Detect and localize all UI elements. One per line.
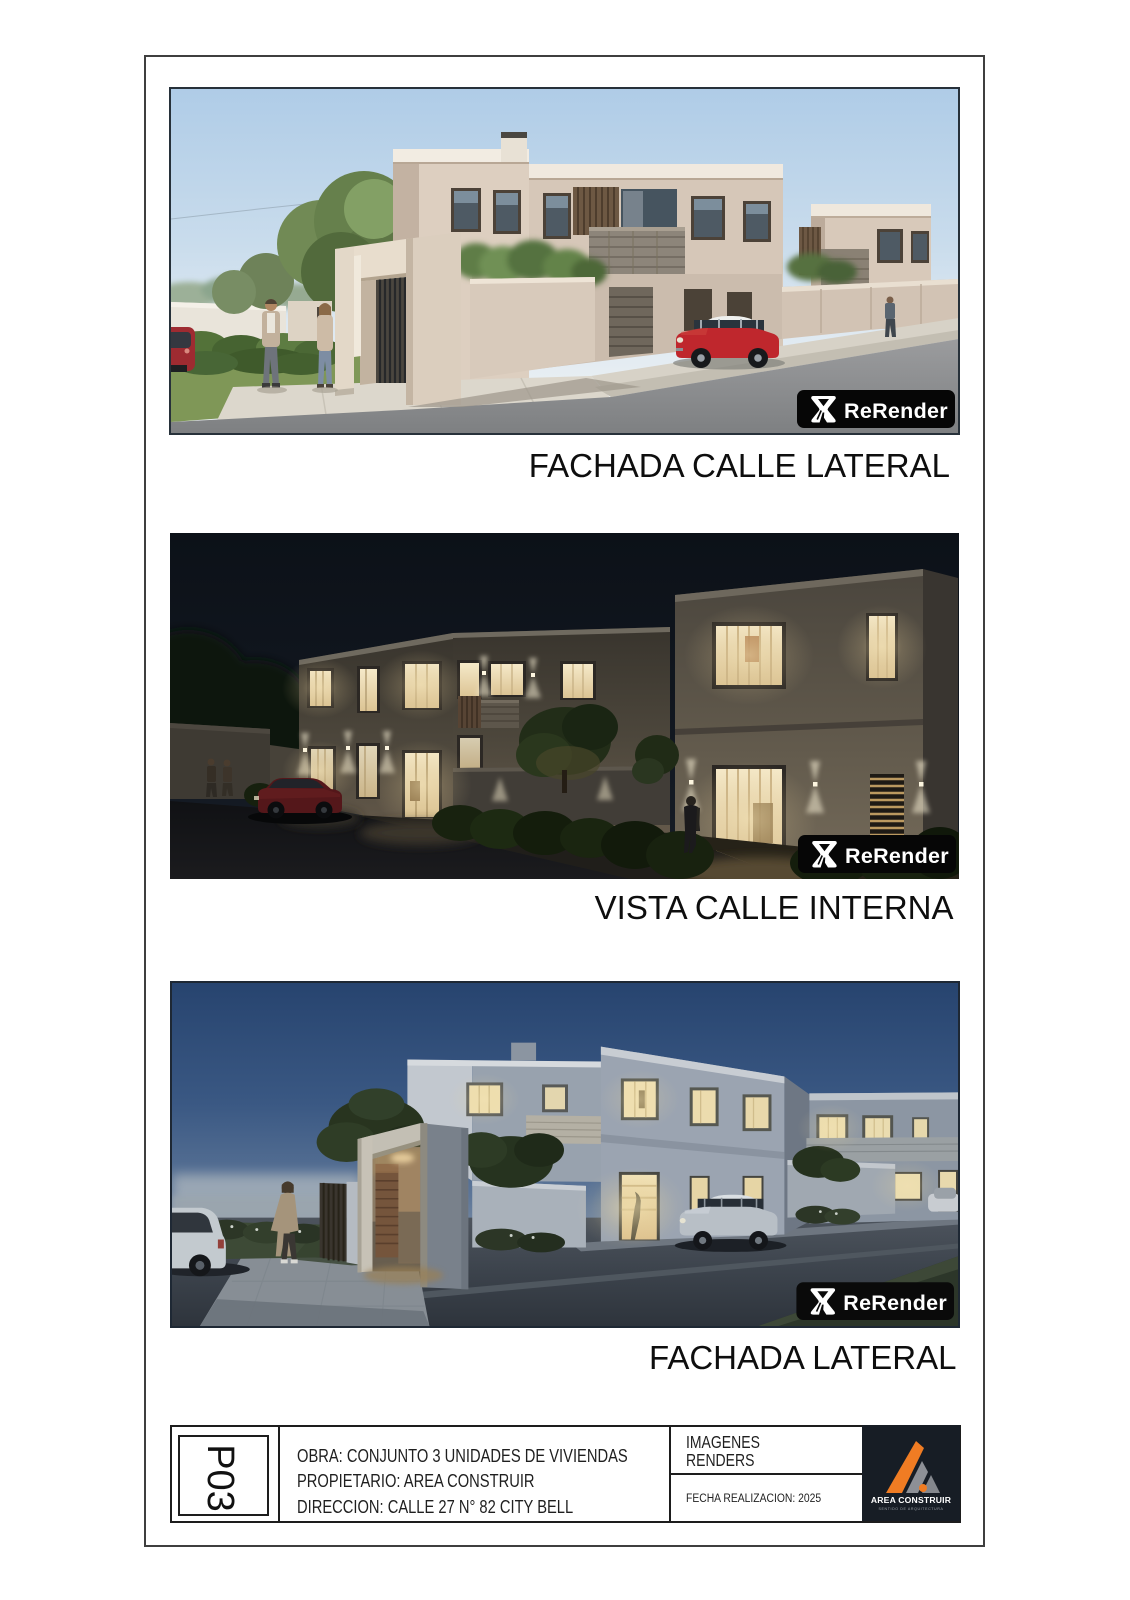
svg-text:ReRender: ReRender	[843, 1291, 947, 1315]
svg-text:ReRender: ReRender	[844, 399, 948, 423]
svg-text:ReRender: ReRender	[845, 844, 949, 868]
svg-text:AREA CONSTRUIR: AREA CONSTRUIR	[871, 1495, 952, 1505]
svg-text:SENTIDO DE ARQUITECTURA: SENTIDO DE ARQUITECTURA	[879, 1507, 944, 1511]
